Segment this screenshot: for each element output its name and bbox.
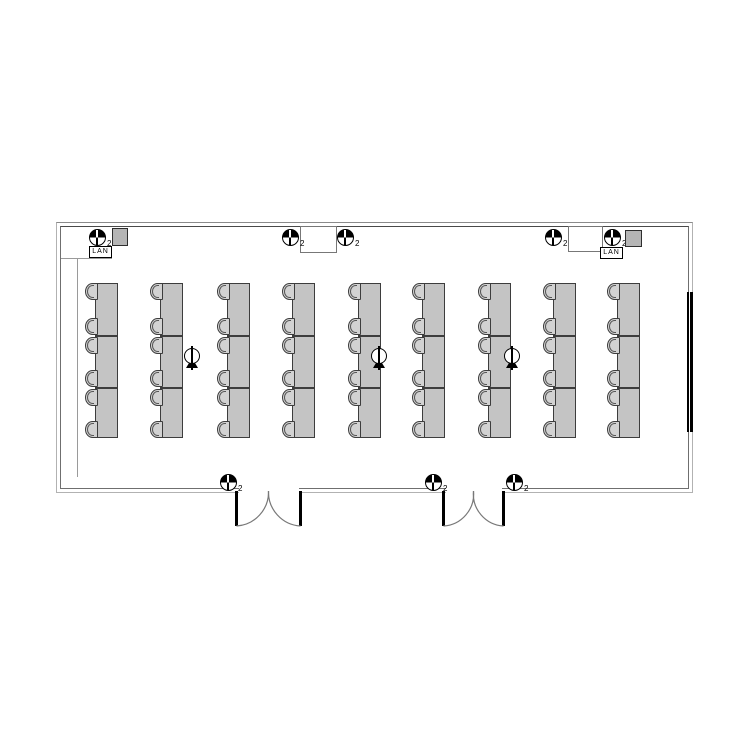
door-swing-arc (268, 491, 300, 526)
door-swing-arcs (0, 0, 750, 750)
door-swing-arc (444, 491, 474, 526)
floor-plan-canvas: 22222222LANLAN (0, 0, 750, 750)
door-swing-arc (473, 491, 503, 526)
door-swing-arc (237, 491, 269, 526)
